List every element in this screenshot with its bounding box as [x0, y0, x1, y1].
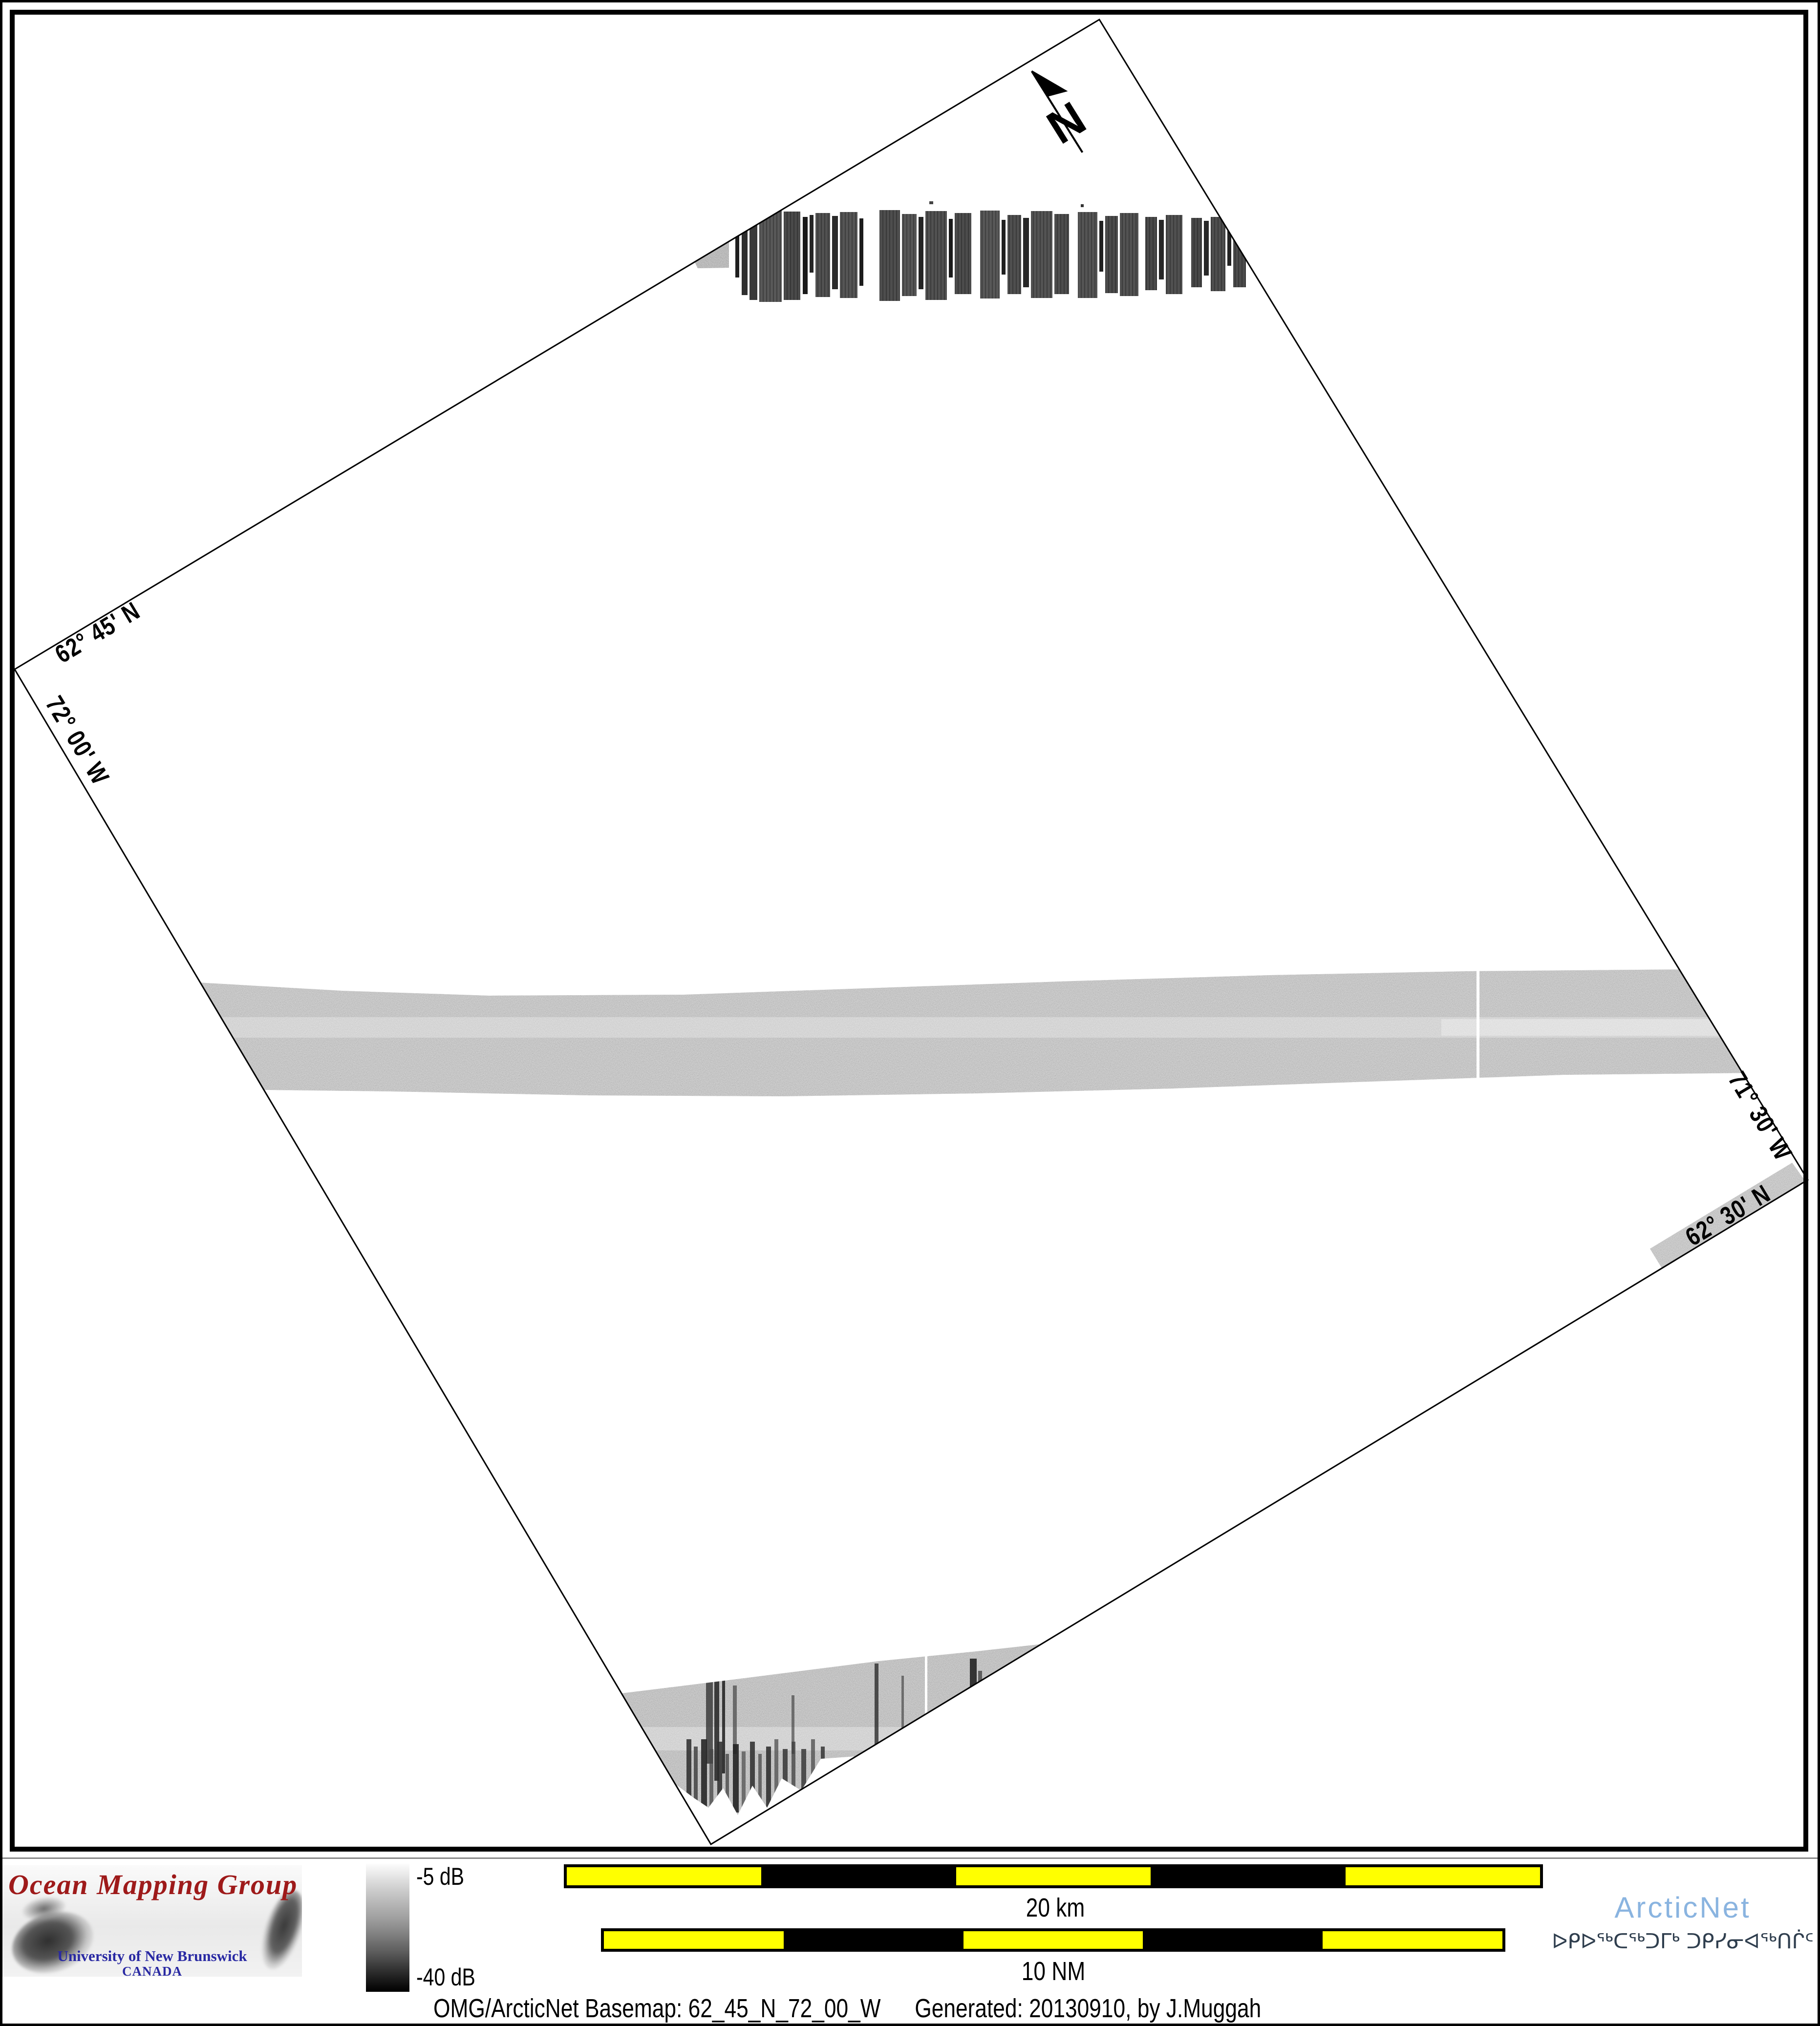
colorbar-max-label: -5 dB [416, 1862, 475, 1891]
scalebar-nm-segment [1323, 1931, 1502, 1949]
scalebar-km [564, 1864, 1543, 1888]
north-arrow-letter: N [1038, 91, 1095, 155]
scalebar-km-segment [956, 1867, 1151, 1885]
scalebar-km-segment [1346, 1867, 1540, 1885]
omg-logo-country: CANADA [2, 1964, 302, 1977]
scalebar-nm-segment [604, 1931, 784, 1949]
scalebar-km-label: 20 km [1019, 1893, 1091, 1923]
scalebar-nm-segment [1143, 1931, 1323, 1949]
omg-logo-title: Ocean Mapping Group [8, 1868, 298, 1901]
scalebar-nm-label: 10 NM [1014, 1956, 1092, 1986]
basemap-caption-generated: Generated: 20130910, by J.Muggah [915, 1994, 1261, 2023]
backscatter-colorbar [366, 1864, 409, 1992]
scalebar-km-segment [1151, 1867, 1345, 1885]
arcticnet-logo-name: ArcticNet [1552, 1891, 1814, 1924]
scalebar-km-segment [567, 1867, 761, 1885]
arcticnet-logo: ArcticNet ᐅᑭᐅᖅᑕᖅᑐᒥᒃ ᑐᑭᓯᓂᐊᖅᑎᒌᑦ [1552, 1891, 1814, 1953]
basemap-caption: OMG/ArcticNet Basemap: 62_45_N_72_00_WGe… [433, 1993, 1443, 2024]
scalebar-nm-segment [964, 1931, 1143, 1949]
scalebar-km-segment [761, 1867, 956, 1885]
scalebar-nm [601, 1928, 1505, 1952]
basemap-caption-title: OMG/ArcticNet Basemap: 62_45_N_72_00_W [433, 1994, 881, 2023]
scalebar-nm-segment [784, 1931, 964, 1949]
footer-separator-line [2, 1857, 1818, 1859]
basemap-page: 62° 45' N 72° 00' W 71° 30' W 62° 30' N … [0, 0, 1820, 2026]
omg-logo: Ocean Mapping Group University of New Br… [2, 1865, 302, 1977]
omg-logo-institution: University of New Brunswick [2, 1947, 302, 1965]
colorbar-min-label: -40 dB [416, 1963, 488, 1991]
map-frame [10, 10, 1808, 1852]
arcticnet-logo-inuktitut: ᐅᑭᐅᖅᑕᖅᑐᒥᒃ ᑐᑭᓯᓂᐊᖅᑎᒌᑦ [1552, 1929, 1814, 1953]
